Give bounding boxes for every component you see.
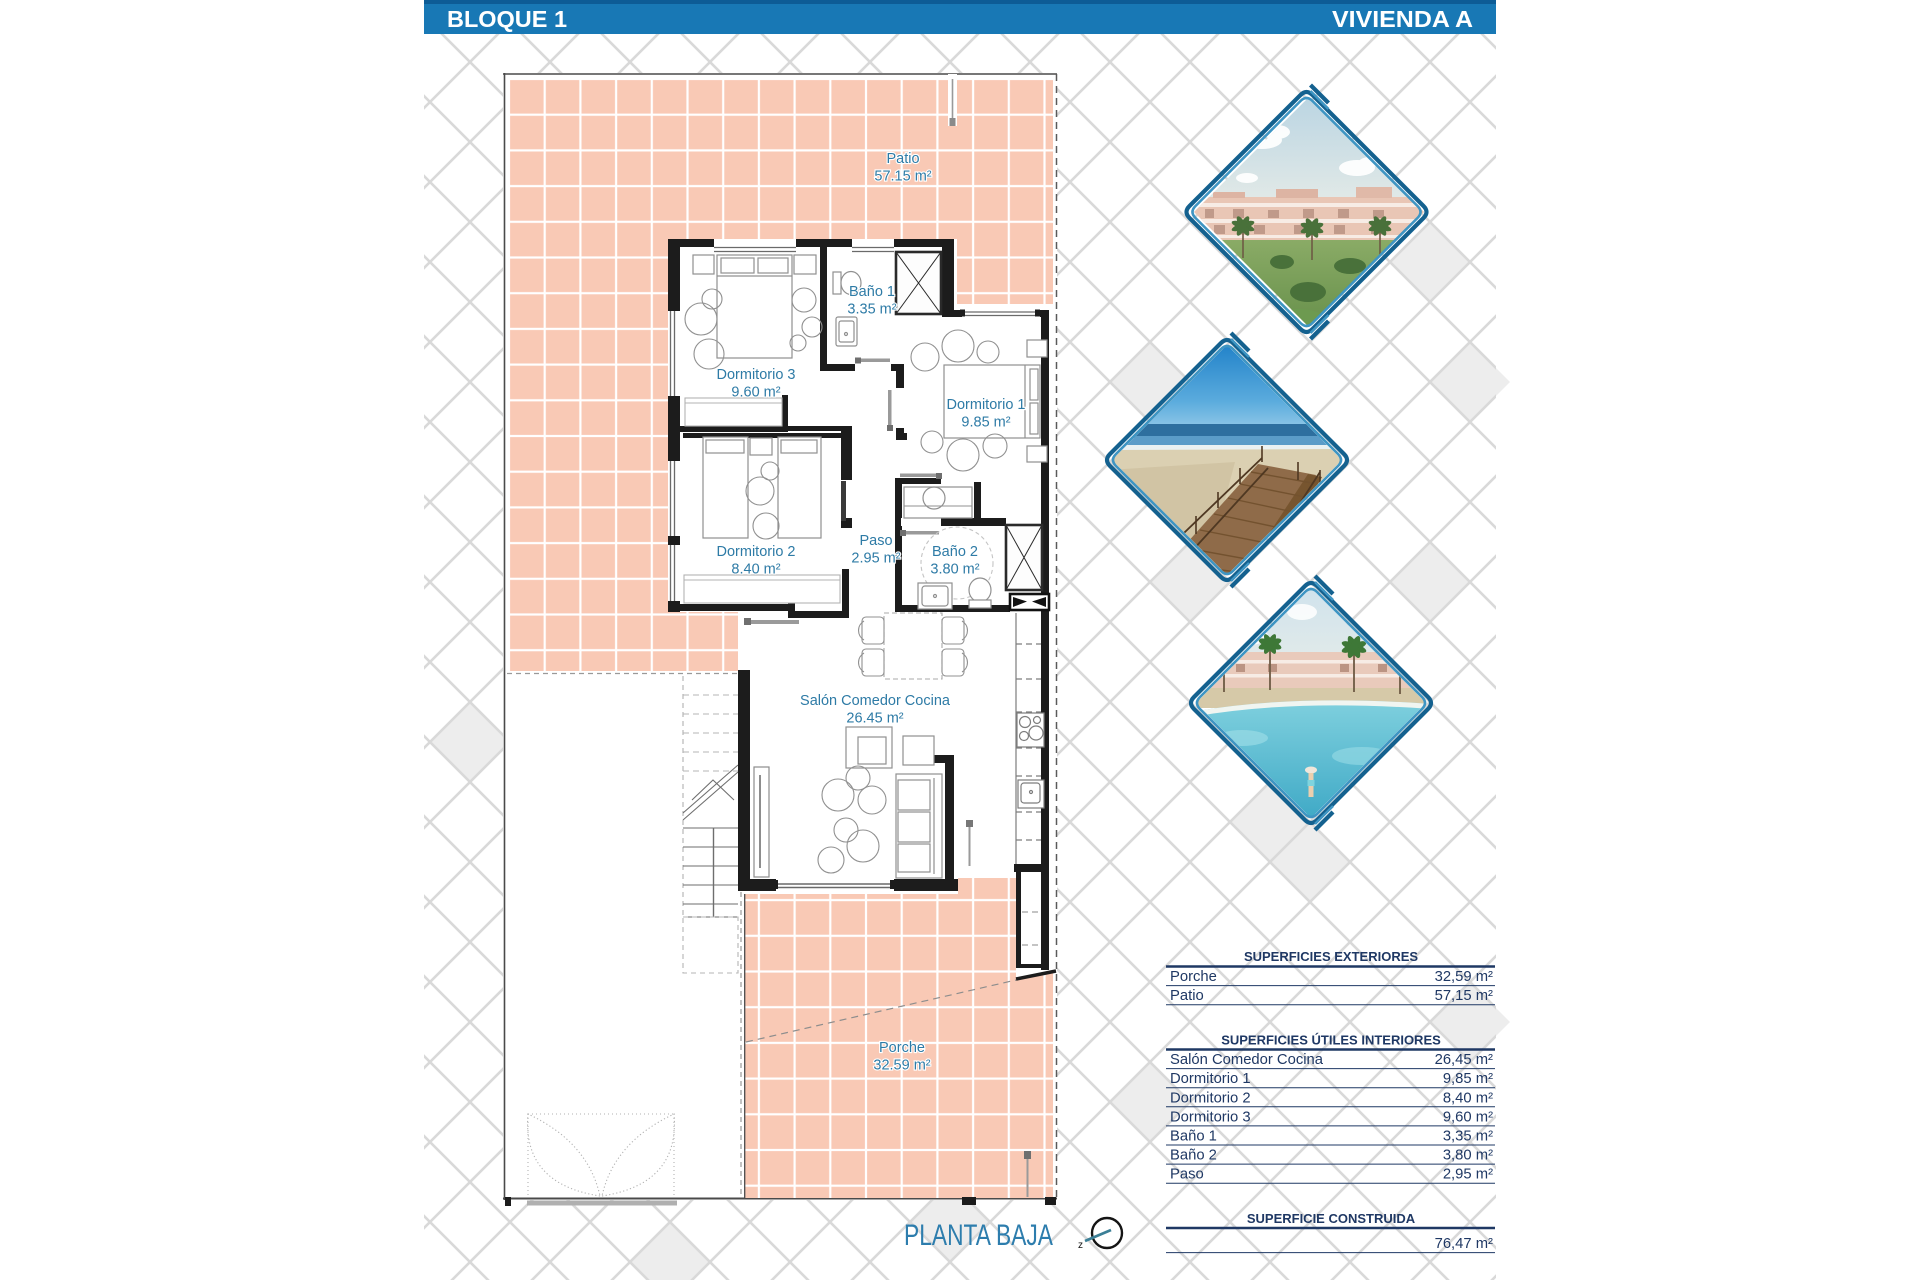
svg-text:8,40 m²: 8,40 m² <box>1443 1090 1493 1106</box>
svg-text:Dormitorio 3: Dormitorio 3 <box>1170 1109 1251 1125</box>
svg-text:32,59 m²: 32,59 m² <box>1435 969 1493 985</box>
svg-text:Paso: Paso <box>859 533 892 549</box>
svg-text:Porche: Porche <box>1170 969 1217 985</box>
svg-text:9,85 m²: 9,85 m² <box>1443 1071 1493 1087</box>
svg-text:Patio: Patio <box>1170 988 1204 1004</box>
svg-text:SUPERFICIE CONSTRUIDA: SUPERFICIE CONSTRUIDA <box>1247 1211 1416 1226</box>
svg-text:Paso: Paso <box>1170 1167 1204 1183</box>
svg-text:3,80 m²: 3,80 m² <box>1443 1148 1493 1164</box>
svg-text:Baño 1: Baño 1 <box>1170 1129 1217 1145</box>
svg-text:3,35 m²: 3,35 m² <box>1443 1129 1493 1145</box>
svg-text:9.85 m²: 9.85 m² <box>961 415 1010 431</box>
svg-text:Baño 1: Baño 1 <box>849 284 895 300</box>
svg-text:Dormitorio 2: Dormitorio 2 <box>1170 1090 1251 1106</box>
svg-text:8.40 m²: 8.40 m² <box>731 562 780 578</box>
svg-text:Porche: Porche <box>879 1040 925 1056</box>
svg-text:26.45 m²: 26.45 m² <box>846 711 903 727</box>
svg-text:2.95 m²: 2.95 m² <box>851 551 900 567</box>
svg-text:Baño 2: Baño 2 <box>1170 1148 1217 1164</box>
svg-text:BLOQUE 1: BLOQUE 1 <box>447 6 567 32</box>
svg-text:57.15 m²: 57.15 m² <box>874 169 931 185</box>
svg-text:Dormitorio 2: Dormitorio 2 <box>717 544 796 560</box>
svg-text:VIVIENDA A: VIVIENDA A <box>1332 6 1473 32</box>
svg-text:PLANTA BAJA: PLANTA BAJA <box>904 1219 1053 1252</box>
svg-text:Dormitorio 3: Dormitorio 3 <box>717 367 796 383</box>
svg-text:SUPERFICIES EXTERIORES: SUPERFICIES EXTERIORES <box>1244 949 1418 964</box>
svg-text:SUPERFICIES ÚTILES INTERIORES: SUPERFICIES ÚTILES INTERIORES <box>1221 1033 1441 1048</box>
svg-text:Dormitorio 1: Dormitorio 1 <box>947 397 1026 413</box>
svg-text:2,95 m²: 2,95 m² <box>1443 1167 1493 1183</box>
svg-text:z: z <box>1078 1240 1083 1251</box>
svg-text:3.35 m²: 3.35 m² <box>847 302 896 318</box>
svg-text:9,60 m²: 9,60 m² <box>1443 1109 1493 1125</box>
svg-text:Dormitorio 1: Dormitorio 1 <box>1170 1071 1251 1087</box>
svg-text:26,45 m²: 26,45 m² <box>1435 1052 1493 1068</box>
svg-text:Salón Comedor Cocina: Salón Comedor Cocina <box>1170 1052 1324 1068</box>
svg-text:32.59 m²: 32.59 m² <box>873 1058 930 1074</box>
svg-text:Salón Comedor Cocina: Salón Comedor Cocina <box>800 693 951 709</box>
svg-text:3.80 m²: 3.80 m² <box>930 562 979 578</box>
svg-text:Patio: Patio <box>886 151 919 167</box>
svg-text:57,15 m²: 57,15 m² <box>1435 988 1493 1004</box>
svg-text:Baño 2: Baño 2 <box>932 544 978 560</box>
svg-text:9.60 m²: 9.60 m² <box>731 385 780 401</box>
svg-text:76,47 m²: 76,47 m² <box>1435 1236 1493 1252</box>
